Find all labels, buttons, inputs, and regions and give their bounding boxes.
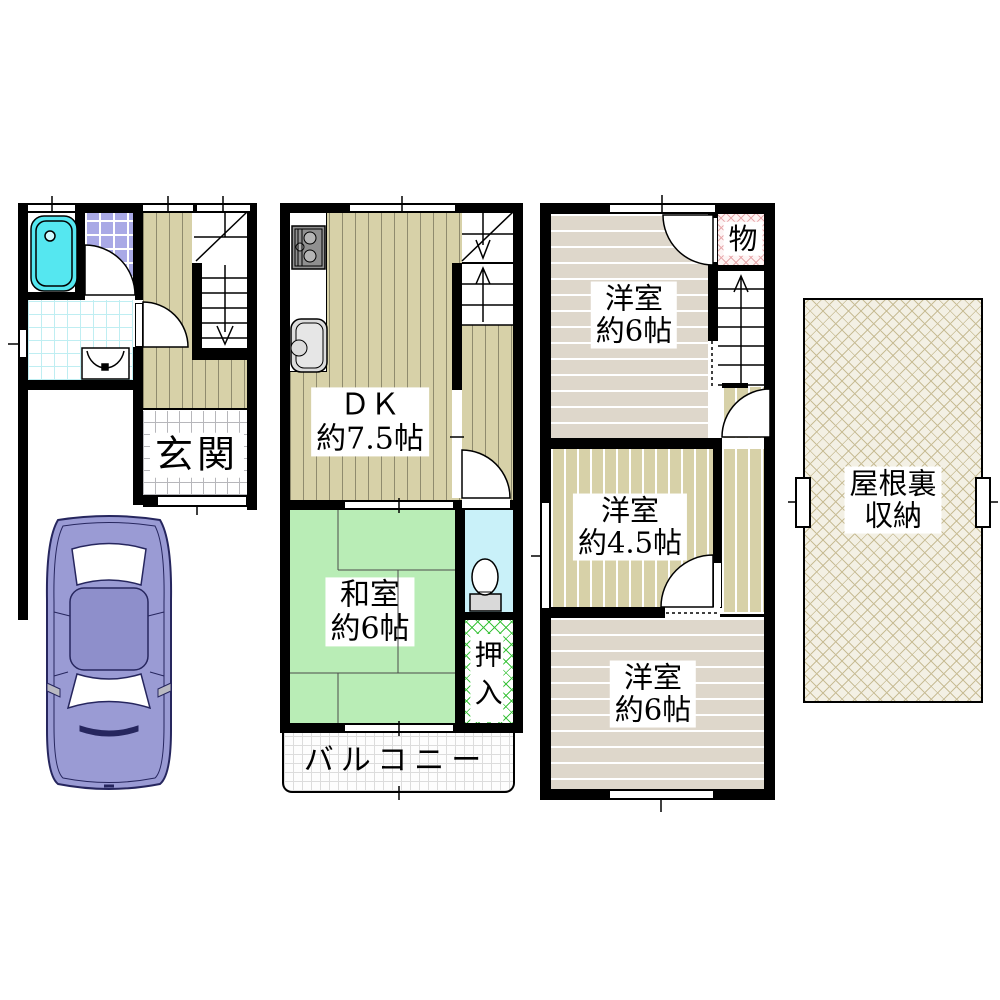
stairs-2f-floor [462,213,513,325]
wall [722,383,748,388]
wall [764,203,775,800]
wall [708,271,718,341]
floor-plan-page: 玄関 ＤＫ 約7.5帖 和室 約6帖 [0,0,1000,1000]
entrance-label: 玄関 [150,433,244,478]
wall [540,607,665,618]
attic-window [975,477,991,528]
entrance-step-line [143,408,247,410]
room-label-mid: 洋室 約4.5帖 [573,494,687,561]
window [610,789,713,800]
window [610,203,715,214]
hallway-3f-floor [722,449,764,612]
stairs-3f-floor [718,271,764,385]
door-threshold [85,292,135,300]
stair-landing-floor [722,387,764,438]
wall-line [720,614,764,617]
attic-label: 屋根裏 収納 [844,467,941,534]
window [143,203,193,213]
wall [455,612,513,620]
stair-landing-gap [708,341,718,387]
wall [540,203,551,800]
wall [452,263,462,390]
room-label-oshiire: 押入 [470,634,503,722]
room-bathroom-tile [85,213,133,292]
room-label-north: 洋室 約6帖 [591,282,677,349]
wall [280,203,290,733]
wall [192,348,257,360]
door-threshold [665,607,720,618]
car-mirror-right [158,683,171,697]
window [28,203,75,213]
wall [133,213,143,300]
sliding-door [345,723,453,733]
kitchen-counter [290,213,327,372]
window [540,503,551,608]
door-leaf [135,303,143,347]
room-toilet-floor [465,508,513,612]
car-windshield [68,674,150,708]
car-icon [47,516,171,789]
door-threshold [462,498,510,508]
balcony-label: バルコニー [299,743,493,779]
hallway-1f-floor-2 [192,360,247,409]
room-label-dk: ＤＫ 約7.5帖 [311,387,429,456]
sliding-door [345,500,453,510]
room-label-south: 洋室 約6帖 [610,661,696,728]
wall [192,263,202,360]
wall [713,449,722,562]
wall [18,203,28,620]
room-bathroom-floor [28,213,75,292]
attic-window [795,477,811,528]
door-leaf [713,562,722,608]
car-roof [70,588,148,670]
storage-mono-label: 物 [723,222,762,256]
window [350,203,455,213]
wall [75,213,85,292]
wall [18,380,143,390]
door-gap [722,438,764,449]
room-label-washitsu: 和室 約6帖 [325,577,414,646]
car-grille [80,726,138,736]
wall [513,203,523,733]
entrance-door [158,495,246,507]
opening-dk-hall [452,390,462,498]
window [197,203,250,213]
room-washroom-floor [28,300,133,380]
wall [133,347,143,505]
wall [18,292,85,300]
car-mirror-left [47,683,60,697]
door-leaf [708,217,718,263]
window [18,330,28,357]
car-rear-window [72,544,146,586]
hallway-1f-floor [143,213,192,409]
